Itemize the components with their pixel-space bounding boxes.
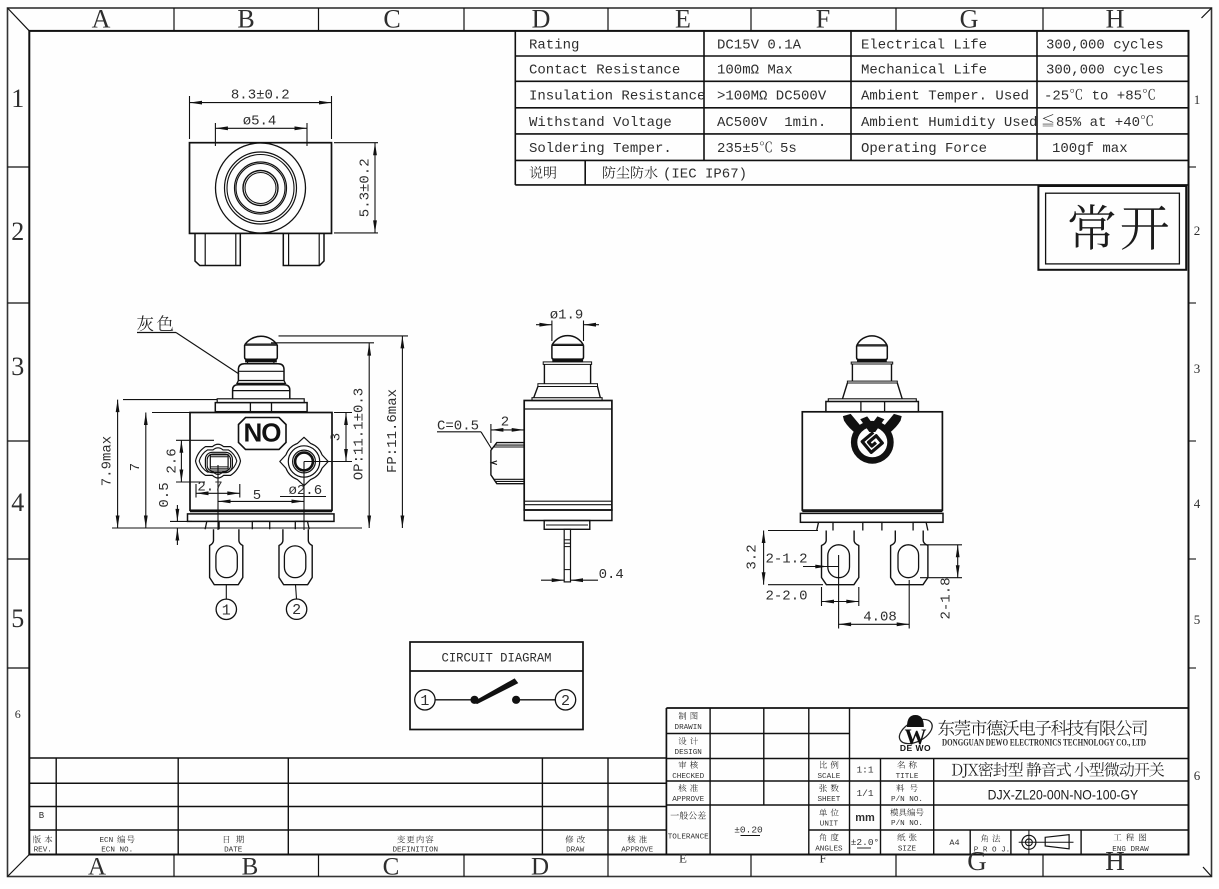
svg-text:ANGLES: ANGLES bbox=[815, 845, 843, 853]
svg-text:Electrical Life: Electrical Life bbox=[861, 37, 987, 53]
svg-text:to +85: to +85 bbox=[1092, 89, 1142, 105]
svg-text:ø1.9: ø1.9 bbox=[550, 308, 584, 324]
svg-text:(IEC IP67): (IEC IP67) bbox=[663, 167, 747, 183]
svg-text:P/N NO.: P/N NO. bbox=[891, 796, 923, 804]
svg-text:DC15V 0.1A: DC15V 0.1A bbox=[717, 37, 802, 53]
svg-text:3: 3 bbox=[1194, 361, 1201, 376]
svg-text:A4: A4 bbox=[949, 838, 959, 848]
svg-text:DESIGN: DESIGN bbox=[675, 749, 702, 757]
svg-text:NO: NO bbox=[244, 418, 282, 448]
svg-text:DATE: DATE bbox=[224, 847, 243, 855]
svg-text:±0.20: ±0.20 bbox=[734, 825, 763, 836]
svg-text:4.08: 4.08 bbox=[863, 610, 897, 626]
svg-text:5.3±0.2: 5.3±0.2 bbox=[358, 158, 374, 217]
svg-text:REV.: REV. bbox=[34, 847, 52, 855]
svg-text:B: B bbox=[242, 854, 259, 881]
svg-text:AC500V 1min.: AC500V 1min. bbox=[717, 115, 826, 131]
svg-text:2: 2 bbox=[501, 415, 509, 431]
svg-text:-25: -25 bbox=[1044, 89, 1069, 105]
svg-text:E: E bbox=[679, 851, 687, 866]
svg-text:5: 5 bbox=[1194, 612, 1201, 627]
svg-text:85% at +40: 85% at +40 bbox=[1056, 115, 1140, 131]
svg-text:B: B bbox=[39, 811, 45, 821]
svg-text:DE WO: DE WO bbox=[900, 743, 931, 753]
svg-text:4: 4 bbox=[1194, 496, 1201, 511]
svg-text:2: 2 bbox=[292, 602, 301, 619]
svg-text:H: H bbox=[1106, 4, 1125, 33]
svg-text:P/N NO.: P/N NO. bbox=[891, 820, 923, 828]
svg-text:300,000 cycles: 300,000 cycles bbox=[1046, 37, 1164, 53]
svg-text:2-1.8: 2-1.8 bbox=[939, 577, 955, 619]
svg-text:>100MΩ DC500V: >100MΩ DC500V bbox=[717, 89, 827, 105]
svg-text:ECN NO.: ECN NO. bbox=[101, 847, 133, 855]
svg-text:ø5.4: ø5.4 bbox=[243, 114, 277, 130]
svg-text:C: C bbox=[383, 854, 400, 881]
svg-text:UNIT: UNIT bbox=[820, 821, 839, 829]
svg-text:SCALE: SCALE bbox=[818, 773, 841, 781]
svg-text:8.3±0.2: 8.3±0.2 bbox=[231, 88, 290, 104]
svg-text:2: 2 bbox=[1194, 223, 1201, 238]
svg-text:Ambient Humidity Used: Ambient Humidity Used bbox=[861, 115, 1037, 131]
svg-text:DONGGUAN DEWO ELECTRONICS TECH: DONGGUAN DEWO ELECTRONICS TECHNOLOGY CO.… bbox=[942, 739, 1146, 749]
svg-text:Contact Resistance: Contact Resistance bbox=[529, 63, 680, 79]
svg-text:APPROVE: APPROVE bbox=[672, 796, 704, 804]
svg-text:3: 3 bbox=[11, 352, 24, 381]
svg-text:1: 1 bbox=[11, 84, 24, 113]
svg-text:2.6: 2.6 bbox=[164, 448, 180, 473]
svg-text:7: 7 bbox=[128, 463, 144, 471]
svg-text:ECN: ECN bbox=[100, 837, 114, 845]
svg-text:DRAWIN: DRAWIN bbox=[675, 724, 702, 732]
svg-text:1: 1 bbox=[1194, 92, 1201, 107]
svg-text:SIZE: SIZE bbox=[898, 845, 917, 853]
svg-text:1:1: 1:1 bbox=[856, 765, 873, 776]
svg-text:CIRCUIT DIAGRAM: CIRCUIT DIAGRAM bbox=[442, 651, 552, 666]
svg-text:3.2: 3.2 bbox=[745, 544, 761, 569]
svg-text:Withstand Voltage: Withstand Voltage bbox=[529, 115, 672, 131]
svg-text:TITLE: TITLE bbox=[896, 773, 919, 781]
svg-text:DJX-ZL20-00N-NO-100-GY: DJX-ZL20-00N-NO-100-GY bbox=[988, 786, 1139, 802]
svg-text:E: E bbox=[675, 4, 691, 33]
svg-text:0.5: 0.5 bbox=[157, 482, 173, 507]
svg-text:OP:11.1±0.3: OP:11.1±0.3 bbox=[351, 388, 367, 480]
svg-text:1: 1 bbox=[420, 693, 429, 710]
svg-text:2-1.2: 2-1.2 bbox=[766, 552, 808, 568]
svg-text:Ambient Temper. Used: Ambient Temper. Used bbox=[861, 89, 1029, 105]
svg-text:A: A bbox=[88, 854, 106, 881]
svg-text:7.9max: 7.9max bbox=[100, 436, 116, 486]
svg-text:235±5: 235±5 bbox=[717, 141, 759, 157]
svg-text:Insulation Resistance: Insulation Resistance bbox=[529, 89, 705, 105]
svg-text:Soldering Temper.: Soldering Temper. bbox=[529, 141, 672, 157]
svg-text:APPROVE: APPROVE bbox=[621, 847, 653, 855]
svg-text:CHECKED: CHECKED bbox=[672, 773, 704, 781]
svg-text:300,000 cycles: 300,000 cycles bbox=[1046, 63, 1164, 79]
svg-text:2: 2 bbox=[11, 217, 24, 246]
svg-text:A: A bbox=[92, 4, 111, 33]
svg-text:1: 1 bbox=[222, 602, 231, 619]
svg-text:Mechanical Life: Mechanical Life bbox=[861, 63, 987, 79]
svg-text:DRAW: DRAW bbox=[566, 847, 585, 855]
svg-text:F: F bbox=[816, 4, 830, 33]
svg-text:6: 6 bbox=[15, 707, 21, 721]
svg-text:2.7: 2.7 bbox=[197, 480, 222, 496]
svg-text:D: D bbox=[531, 854, 549, 881]
svg-text:mm: mm bbox=[855, 812, 875, 824]
svg-text:D: D bbox=[532, 4, 551, 33]
svg-text:2: 2 bbox=[561, 693, 570, 710]
svg-text:5s: 5s bbox=[780, 141, 797, 157]
svg-text:SHEET: SHEET bbox=[818, 796, 841, 804]
svg-text:TOLERANCE: TOLERANCE bbox=[668, 834, 709, 842]
svg-text:3: 3 bbox=[329, 433, 345, 441]
svg-text:4: 4 bbox=[11, 488, 24, 517]
svg-text:1/1: 1/1 bbox=[856, 788, 873, 799]
svg-text:Rating: Rating bbox=[529, 37, 579, 53]
svg-text:B: B bbox=[237, 4, 254, 33]
svg-text:DEFINITION: DEFINITION bbox=[393, 847, 439, 855]
svg-text:5: 5 bbox=[253, 488, 261, 504]
svg-text:100mΩ Max: 100mΩ Max bbox=[717, 63, 793, 79]
svg-text:100gf max: 100gf max bbox=[1052, 141, 1128, 157]
svg-text:C: C bbox=[383, 4, 400, 33]
svg-text:±2.0°: ±2.0° bbox=[851, 837, 880, 848]
svg-text:G: G bbox=[960, 4, 979, 33]
svg-text:P R O J.: P R O J. bbox=[974, 847, 1010, 855]
svg-text:2-2.0: 2-2.0 bbox=[766, 589, 808, 605]
svg-text:0.4: 0.4 bbox=[599, 567, 624, 583]
svg-text:5: 5 bbox=[11, 604, 24, 633]
svg-text:Operating Force: Operating Force bbox=[861, 141, 987, 157]
svg-text:6: 6 bbox=[1194, 768, 1201, 783]
svg-text:ENG DRAW: ENG DRAW bbox=[1112, 846, 1149, 854]
svg-text:FP:11.6max: FP:11.6max bbox=[385, 389, 401, 473]
